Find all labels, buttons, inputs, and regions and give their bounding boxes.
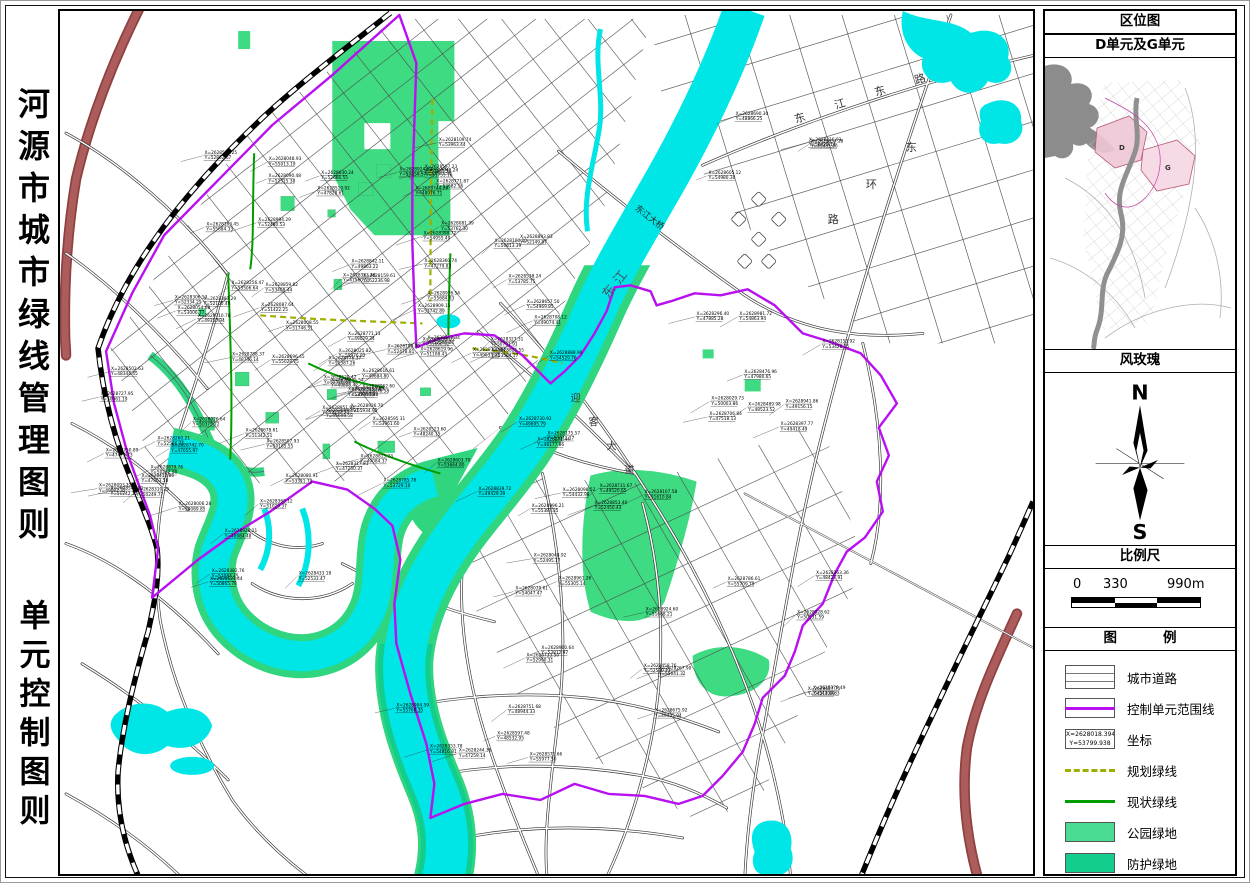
svg-text:X=2628353.78: X=2628353.78 — [430, 744, 463, 750]
svg-text:X=2628538.24: X=2628538.24 — [509, 274, 542, 280]
svg-text:Y=49684.80: Y=49684.80 — [361, 373, 389, 379]
svg-text:Y=52480.53: Y=52480.53 — [257, 222, 285, 228]
svg-text:X=2628505.25: X=2628505.25 — [205, 150, 238, 156]
svg-text:X=2628502.63: X=2628502.63 — [111, 366, 144, 372]
southwest-pond — [170, 757, 214, 775]
svg-text:X=2628271.44: X=2628271.44 — [537, 437, 570, 443]
svg-text:X=2628675.92: X=2628675.92 — [655, 708, 688, 714]
svg-text:Y=51422.25: Y=51422.25 — [260, 307, 288, 313]
page-title: 河源市城市绿线管理图则 — [9, 87, 55, 549]
svg-text:X=2628924.60: X=2628924.60 — [646, 607, 679, 613]
wind-rose-west-petal — [1122, 467, 1140, 475]
legend-label: 控制单元范围线 — [1127, 699, 1215, 718]
svg-text:Y=51387.26: Y=51387.26 — [328, 361, 356, 367]
svg-text:Y=50061.19: Y=50061.19 — [100, 396, 128, 402]
svg-text:Y=53963.44: Y=53963.44 — [438, 142, 466, 148]
svg-text:X=2628353.46: X=2628353.46 — [343, 272, 376, 278]
svg-text:X=2628750.89: X=2628750.89 — [106, 448, 139, 454]
svg-text:X=2628731.67: X=2628731.67 — [600, 483, 633, 489]
svg-text:X=2628360.12: X=2628360.12 — [260, 498, 293, 504]
svg-text:Y=50003.86: Y=50003.86 — [710, 401, 738, 407]
unit-boundary-symbol — [1065, 698, 1115, 718]
svg-text:X=2628543.34: X=2628543.34 — [427, 335, 460, 341]
svg-text:X=2628306.53: X=2628306.53 — [175, 294, 208, 300]
south-label: S — [1133, 520, 1148, 543]
svg-text:X=2628382.76: X=2628382.76 — [212, 568, 245, 574]
svg-text:Y=49084.37: Y=49084.37 — [359, 459, 387, 465]
svg-text:X=2628771.13: X=2628771.13 — [348, 331, 381, 337]
svg-text:Y=53664.80: Y=53664.80 — [437, 462, 465, 468]
svg-text:X=2628839.72: X=2628839.72 — [479, 486, 512, 492]
coordinate-sample-x: X=2628018.394 — [1066, 730, 1114, 739]
svg-text:Y=52315.38: Y=52315.38 — [268, 178, 296, 184]
legend-label: 城市道路 — [1127, 668, 1177, 687]
svg-text:X=2628048.92: X=2628048.92 — [534, 553, 567, 559]
svg-text:Y=54980.30: Y=54980.30 — [708, 175, 736, 181]
svg-text:X=2628379.49: X=2628379.49 — [813, 685, 846, 691]
svg-text:Y=52334.25: Y=52334.25 — [174, 300, 202, 306]
park-patch — [703, 349, 714, 358]
svg-text:X=2628742.70: X=2628742.70 — [171, 443, 204, 449]
svg-text:X=2628904.59: X=2628904.59 — [396, 702, 429, 708]
svg-text:Y=47250.37: Y=47250.37 — [335, 466, 363, 472]
svg-text:Y=55641.32: Y=55641.32 — [658, 671, 686, 677]
location-map-subtitle: D单元及G单元 — [1045, 34, 1235, 58]
svg-text:Y=51342.51: Y=51342.51 — [245, 433, 273, 439]
svg-text:Y=53682.16: Y=53682.16 — [435, 184, 463, 190]
svg-text:X=2628098.91: X=2628098.91 — [326, 408, 359, 414]
svg-text:Y=52326.89: Y=52326.89 — [323, 380, 351, 386]
svg-text:X=2628489.98: X=2628489.98 — [748, 402, 781, 408]
svg-text:X=2628048.93: X=2628048.93 — [269, 156, 302, 162]
svg-text:X=2628900.64: X=2628900.64 — [541, 645, 574, 651]
svg-text:X=2628025.82: X=2628025.82 — [339, 348, 372, 354]
legend-row-city-road: 城市道路 — [1065, 665, 1235, 689]
legend-label: 公园绿地 — [1127, 823, 1177, 842]
svg-text:X=2628310.29: X=2628310.29 — [137, 487, 170, 493]
svg-text:X=2628976.54: X=2628976.54 — [428, 290, 461, 296]
svg-text:X=2628397.77: X=2628397.77 — [781, 421, 814, 427]
svg-text:X=2628785.78: X=2628785.78 — [384, 478, 417, 484]
svg-text:Y=54863.94: Y=54863.94 — [738, 316, 766, 322]
svg-text:Y=48746.14: Y=48746.14 — [231, 357, 259, 363]
legend-row-unit-boundary: 控制单元范围线 — [1065, 696, 1235, 720]
svg-text:Y=53570.68: Y=53570.68 — [347, 392, 375, 398]
svg-text:Y=48427.91: Y=48427.91 — [815, 575, 843, 581]
svg-text:Y=47980.65: Y=47980.65 — [743, 374, 771, 380]
svg-text:X=2628107.58: X=2628107.58 — [645, 489, 678, 495]
north-park — [332, 41, 454, 235]
park-patch — [745, 379, 761, 391]
svg-text:Y=53785.75: Y=53785.75 — [508, 279, 536, 285]
svg-text:X=2628597.48: X=2628597.48 — [497, 730, 530, 736]
svg-text:Y=47828.61: Y=47828.61 — [316, 191, 344, 197]
svg-text:X=2628188.30: X=2628188.30 — [388, 344, 421, 350]
svg-text:Y=50375.72: Y=50375.72 — [192, 422, 220, 428]
svg-text:X=2628825.55: X=2628825.55 — [491, 348, 524, 354]
svg-text:Y=54109.83: Y=54109.83 — [812, 690, 840, 696]
svg-text:Y=48177.86: Y=48177.86 — [536, 442, 564, 448]
svg-text:Y=50531.59: Y=50531.59 — [796, 615, 824, 621]
svg-text:X=2628081.39: X=2628081.39 — [441, 221, 474, 227]
south-pond — [752, 821, 793, 874]
svg-text:X=2628571.66: X=2628571.66 — [530, 752, 563, 758]
scale-bar — [1071, 597, 1201, 608]
small-park — [420, 388, 430, 396]
svg-text:X=2628244.36: X=2628244.36 — [459, 748, 492, 754]
legend-title-right: 例 — [1163, 628, 1177, 650]
svg-text:X=2628595.31: X=2628595.31 — [373, 416, 406, 422]
svg-text:Y=48523.52: Y=48523.52 — [747, 407, 775, 413]
svg-text:X=2628163.45: X=2628163.45 — [206, 221, 239, 227]
legend-label: 坐标 — [1127, 730, 1152, 749]
svg-text:X=2628941.24: X=2628941.24 — [426, 167, 459, 173]
svg-text:Y=53729.10: Y=53729.10 — [383, 483, 411, 489]
svg-text:X=2628523.60: X=2628523.60 — [414, 426, 447, 432]
svg-text:X=2628730.92: X=2628730.92 — [519, 416, 552, 422]
road-name-label: 大 — [607, 440, 617, 453]
svg-text:Y=47560.55: Y=47560.55 — [342, 278, 370, 284]
svg-text:X=2628256.47: X=2628256.47 — [232, 280, 265, 286]
svg-text:Y=49695.79: Y=49695.79 — [518, 421, 546, 427]
svg-text:Y=50613.39: Y=50613.39 — [494, 243, 522, 249]
svg-text:Y=49156.15: Y=49156.15 — [785, 404, 813, 410]
svg-text:X=2628153.92: X=2628153.92 — [822, 339, 855, 345]
svg-text:X=2628751.68: X=2628751.68 — [508, 704, 541, 710]
svg-text:Y=51746.51: Y=51746.51 — [285, 325, 313, 331]
svg-text:Y=50089.85: Y=50089.85 — [178, 506, 206, 512]
svg-text:Y=55768.35: Y=55768.35 — [395, 707, 423, 713]
svg-text:X=2628753.73: X=2628753.73 — [348, 387, 381, 393]
scale-segment — [1157, 603, 1200, 608]
wind-rose: N S — [1045, 373, 1235, 545]
svg-text:Y=53321.79: Y=53321.79 — [285, 478, 313, 484]
svg-text:X=2628507.93: X=2628507.93 — [267, 438, 300, 444]
scale-bar-section: 0 330 990m — [1045, 569, 1235, 627]
svg-text:X=2628175.57: X=2628175.57 — [548, 430, 581, 436]
svg-text:Y=50249.77: Y=50249.77 — [136, 492, 164, 498]
svg-text:Y=54816.81: Y=54816.81 — [429, 749, 457, 755]
svg-text:X=2628690.30: X=2628690.30 — [736, 111, 769, 117]
svg-text:Y=51688.21: Y=51688.21 — [645, 612, 673, 618]
svg-text:X=2628708.12: X=2628708.12 — [534, 315, 567, 321]
small-park — [235, 372, 249, 386]
svg-text:X=2628619.96: X=2628619.96 — [420, 346, 453, 352]
svg-text:X=2628360.74: X=2628360.74 — [425, 258, 458, 264]
svg-text:Y=52495.17: Y=52495.17 — [533, 558, 561, 564]
svg-text:Y=49029.34: Y=49029.34 — [347, 336, 375, 342]
svg-text:X=2628981.72: X=2628981.72 — [739, 311, 772, 317]
scale-tick-0: 0 — [1073, 577, 1081, 592]
svg-text:Y=48344.45: Y=48344.45 — [110, 371, 138, 377]
svg-text:X=2628090.48: X=2628090.48 — [269, 173, 302, 179]
svg-text:Y=48240.15: Y=48240.15 — [413, 432, 441, 438]
svg-text:Y=49074.41: Y=49074.41 — [533, 320, 561, 326]
legend-label: 现状绿线 — [1127, 792, 1177, 811]
svg-text:X=2628605.12: X=2628605.12 — [709, 170, 742, 176]
road-symbol-line — [1066, 673, 1114, 674]
svg-text:X=2628630.24: X=2628630.24 — [321, 170, 354, 176]
svg-text:X=2628788.37: X=2628788.37 — [232, 352, 265, 358]
svg-text:Y=54432.98: Y=54432.98 — [562, 492, 590, 498]
small-park — [327, 389, 336, 399]
road-name-label: 路 — [828, 213, 839, 226]
svg-text:X=2628080.91: X=2628080.91 — [286, 473, 319, 479]
svg-text:X=2628996.21: X=2628996.21 — [532, 503, 565, 509]
svg-text:Y=49520.65: Y=49520.65 — [599, 488, 627, 494]
park-patch — [238, 31, 250, 49]
svg-text:Y=54969.85: Y=54969.85 — [526, 304, 554, 310]
svg-text:Y=49435.94: Y=49435.94 — [654, 713, 682, 719]
city-road-symbol — [1065, 665, 1115, 689]
svg-text:X=2628776.37: X=2628776.37 — [329, 355, 362, 361]
svg-text:X=2628026.64: X=2628026.64 — [193, 416, 226, 422]
svg-text:Y=47518.13: Y=47518.13 — [708, 416, 736, 422]
svg-text:X=2628888.90: X=2628888.90 — [550, 350, 583, 356]
svg-text:X=2628786.61: X=2628786.61 — [728, 576, 761, 582]
svg-text:Y=48532.95: Y=48532.95 — [496, 736, 524, 742]
svg-text:Y=55387.35: Y=55387.35 — [531, 508, 559, 514]
svg-text:Y=52100.40: Y=52100.40 — [203, 301, 231, 307]
svg-text:X=2628657.50: X=2628657.50 — [527, 299, 560, 305]
svg-text:X=2628260.21: X=2628260.21 — [157, 436, 190, 442]
minimap-unit-g-label: G — [1165, 164, 1171, 172]
road-symbol-line — [1066, 681, 1114, 682]
svg-text:Y=52862.67: Y=52862.67 — [204, 155, 232, 161]
legend-title-left: 图 — [1104, 628, 1118, 650]
svg-text:Y=53506.64: Y=53506.64 — [231, 285, 259, 291]
map-canvas: X=2628025.82Y=55976.82X=2628788.37Y=4874… — [60, 11, 1033, 874]
svg-text:X=2628006.28: X=2628006.28 — [179, 501, 212, 507]
svg-text:X=2628433.18: X=2628433.18 — [299, 571, 332, 577]
svg-text:X=2628842.11: X=2628842.11 — [352, 259, 385, 265]
north-label: N — [1131, 381, 1148, 405]
road-name-label: 迎 — [571, 392, 581, 404]
road-name-label: 环 — [866, 178, 877, 191]
scale-segment — [1072, 603, 1115, 608]
svg-text:Y=53961.60: Y=53961.60 — [372, 421, 400, 427]
scale-tick-990: 990m — [1167, 577, 1204, 592]
svg-text:Y=47479.73: Y=47479.73 — [105, 453, 133, 459]
svg-text:Y=55684.33: Y=55684.33 — [205, 227, 233, 233]
existing-green-line-symbol — [1065, 800, 1115, 803]
svg-text:X=2628520.47: X=2628520.47 — [324, 375, 357, 381]
svg-text:Y=52595.84: Y=52595.84 — [426, 340, 454, 346]
svg-text:Y=55709.79: Y=55709.79 — [727, 581, 755, 587]
svg-text:Y=47863.58: Y=47863.58 — [141, 478, 169, 484]
svg-text:X=2628029.73: X=2628029.73 — [711, 396, 744, 402]
coordinate-sample-y: Y=53799.938 — [1066, 739, 1114, 748]
title-strip: 河源市城市绿线管理图则 单元控制图则 — [7, 1, 57, 882]
svg-text:Y=52666.55: Y=52666.55 — [320, 175, 348, 181]
svg-text:X=2628267.90: X=2628267.90 — [659, 666, 692, 672]
svg-text:Y=50425.14: Y=50425.14 — [808, 142, 836, 148]
svg-text:Y=54529.76: Y=54529.76 — [549, 355, 577, 361]
small-park — [328, 210, 336, 217]
legend: 城市道路 控制单元范围线 X=2628018.394 Y=53799.938 坐… — [1045, 651, 1235, 875]
svg-text:Y=50185.55: Y=50185.55 — [266, 444, 294, 450]
svg-text:Y=53564.17: Y=53564.17 — [490, 353, 518, 359]
scale-segment — [1115, 603, 1158, 608]
svg-text:X=2628008.55: X=2628008.55 — [286, 320, 319, 326]
plan-sheet: 河源市城市绿线管理图则 单元控制图则 — [0, 0, 1250, 883]
park-green-symbol — [1065, 822, 1115, 842]
svg-text:Y=49429.39: Y=49429.39 — [478, 491, 506, 497]
svg-text:Y=50791.91: Y=50791.91 — [490, 342, 518, 348]
sidebar: 区位图 D单元及G单元 DG 风玫瑰 N S 比例尺 0 330 — [1043, 9, 1237, 876]
protective-green-symbol — [1065, 853, 1115, 873]
svg-text:Y=54047.47: Y=54047.47 — [515, 591, 543, 597]
svg-text:X=2628616.61: X=2628616.61 — [362, 368, 395, 374]
svg-text:X=2628476.96: X=2628476.96 — [744, 369, 777, 375]
svg-text:Y=53408.44: Y=53408.44 — [264, 287, 292, 293]
svg-text:Y=49863.22: Y=49863.22 — [351, 264, 379, 270]
svg-text:Y=48976.71: Y=48976.71 — [415, 191, 443, 197]
page-subtitle: 单元控制图则 — [10, 599, 55, 833]
legend-row-protective-green: 防护绿地 — [1065, 851, 1235, 875]
svg-text:Y=50850.57: Y=50850.57 — [399, 172, 427, 178]
svg-text:X=2628727.95: X=2628727.95 — [101, 391, 134, 397]
svg-text:Y=49350.94: Y=49350.94 — [197, 318, 225, 324]
svg-text:Y=52478.81: Y=52478.81 — [387, 349, 415, 355]
svg-text:X=2628603.70: X=2628603.70 — [438, 457, 471, 463]
svg-text:X=2628296.40: X=2628296.40 — [697, 311, 730, 317]
svg-text:X=2628519.92: X=2628519.92 — [317, 185, 350, 191]
svg-text:Y=52533.47: Y=52533.47 — [298, 576, 326, 582]
svg-text:Y=47279.83: Y=47279.83 — [424, 263, 452, 269]
svg-text:Y=47885.28: Y=47885.28 — [696, 316, 724, 322]
scale-tick-330: 330 — [1103, 577, 1128, 592]
legend-row-coordinate: X=2628018.394 Y=53799.938 坐标 — [1065, 727, 1235, 751]
svg-text:Y=52084.45: Y=52084.45 — [211, 573, 239, 579]
legend-row-planned-green-line: 规划绿线 — [1065, 758, 1235, 782]
wind-rose-canvas: N S — [1055, 375, 1225, 543]
svg-text:Y=48984.48: Y=48984.48 — [224, 533, 252, 539]
svg-text:Y=55608.58: Y=55608.58 — [325, 413, 353, 419]
coordinate-symbol: X=2628018.394 Y=53799.938 — [1065, 729, 1115, 749]
svg-text:X=2628098.52: X=2628098.52 — [563, 487, 596, 493]
svg-text:X=2628028.62: X=2628028.62 — [797, 609, 830, 615]
svg-text:X=2628710.78: X=2628710.78 — [198, 313, 231, 319]
northeast-pond — [979, 100, 1022, 144]
svg-text:Y=49418.49: Y=49418.49 — [780, 426, 808, 432]
location-minimap: DG — [1045, 58, 1235, 349]
svg-text:Y=52990.31: Y=52990.31 — [526, 657, 554, 663]
road-name-label: 道 — [625, 464, 635, 477]
legend-row-existing-green-line: 现状绿线 — [1065, 789, 1235, 813]
svg-text:Y=51029.37: Y=51029.37 — [259, 503, 287, 509]
svg-text:Y=47055.97: Y=47055.97 — [170, 448, 198, 454]
wind-rose-title: 风玫瑰 — [1045, 349, 1235, 373]
small-park — [266, 412, 279, 423]
svg-text:X=2628994.29: X=2628994.29 — [258, 217, 291, 223]
svg-text:Y=55977.50: Y=55977.50 — [529, 757, 557, 763]
svg-text:Y=55028.75: Y=55028.75 — [271, 359, 299, 365]
svg-text:Y=51108.43: Y=51108.43 — [419, 351, 447, 357]
legend-title: 图 例 — [1045, 627, 1235, 651]
unit-boundary-symbol-line — [1065, 707, 1115, 710]
small-park — [378, 441, 395, 453]
svg-text:X=2628327.31: X=2628327.31 — [491, 336, 524, 342]
svg-text:X=2628087.64: X=2628087.64 — [261, 302, 294, 308]
svg-text:X=2628100.10: X=2628100.10 — [495, 238, 528, 244]
wind-rose-south-petal — [1133, 467, 1147, 520]
road-name-label: 东 — [906, 141, 917, 154]
svg-text:X=2628079.61: X=2628079.61 — [516, 586, 549, 592]
legend-label: 规划绿线 — [1127, 761, 1177, 780]
svg-text:Y=51755.16: Y=51755.16 — [425, 173, 453, 179]
svg-text:Y=54955.49: Y=54955.49 — [423, 236, 451, 242]
planned-green-line-symbol — [1065, 769, 1115, 772]
svg-text:X=2628310.93: X=2628310.93 — [809, 137, 842, 143]
map-frame: X=2628025.82Y=55976.82X=2628788.37Y=4874… — [58, 9, 1035, 876]
location-minimap-canvas: DG — [1045, 58, 1235, 349]
scale-title: 比例尺 — [1045, 545, 1235, 569]
svg-text:X=2628928.21: X=2628928.21 — [225, 528, 258, 534]
minimap-unit-d-label: D — [1119, 144, 1125, 152]
svg-text:X=2628771.87: X=2628771.87 — [436, 179, 469, 185]
svg-text:X=2628879.76: X=2628879.76 — [151, 464, 184, 470]
svg-text:X=2628961.26: X=2628961.26 — [559, 576, 592, 582]
svg-text:X=2628678.61: X=2628678.61 — [246, 428, 279, 434]
svg-text:X=2628733.50: X=2628733.50 — [527, 652, 560, 658]
svg-text:X=2628387.29: X=2628387.29 — [204, 296, 237, 302]
svg-text:Y=53428.25: Y=53428.25 — [821, 344, 849, 350]
svg-text:X=2628109.74: X=2628109.74 — [439, 137, 472, 143]
svg-text:X=2628363.36: X=2628363.36 — [816, 570, 849, 576]
svg-text:X=2628696.45: X=2628696.45 — [272, 354, 305, 360]
svg-text:X=2628941.86: X=2628941.86 — [786, 399, 819, 405]
svg-text:Y=48944.33: Y=48944.33 — [507, 709, 535, 715]
svg-text:Y=53742.89: Y=53742.89 — [417, 308, 445, 314]
location-map-title: 区位图 — [1045, 11, 1235, 34]
svg-text:Y=51610.84: Y=51610.84 — [644, 494, 672, 500]
svg-text:X=2628909.15: X=2628909.15 — [418, 303, 451, 309]
legend-label: 防护绿地 — [1127, 854, 1177, 873]
svg-text:Y=55684.93: Y=55684.93 — [427, 296, 455, 302]
svg-text:X=2628398.72: X=2628398.72 — [424, 230, 457, 236]
small-park — [281, 196, 294, 210]
svg-text:Y=55305.14: Y=55305.14 — [558, 581, 586, 587]
svg-text:Y=47259.14: Y=47259.14 — [458, 753, 486, 759]
svg-text:Y=50262.90: Y=50262.90 — [150, 470, 178, 476]
svg-text:Y=48866.25: Y=48866.25 — [735, 116, 763, 122]
svg-text:X=2628859.82: X=2628859.82 — [265, 282, 298, 288]
svg-text:X=2628815.23: X=2628815.23 — [360, 453, 393, 459]
road-name-label: 客 — [589, 415, 599, 428]
svg-text:Y=52450.43: Y=52450.43 — [594, 505, 622, 511]
legend-row-park-green: 公园绿地 — [1065, 820, 1235, 844]
svg-text:Y=50865.78: Y=50865.78 — [209, 581, 237, 587]
svg-text:Y=55013.19: Y=55013.19 — [268, 161, 296, 167]
